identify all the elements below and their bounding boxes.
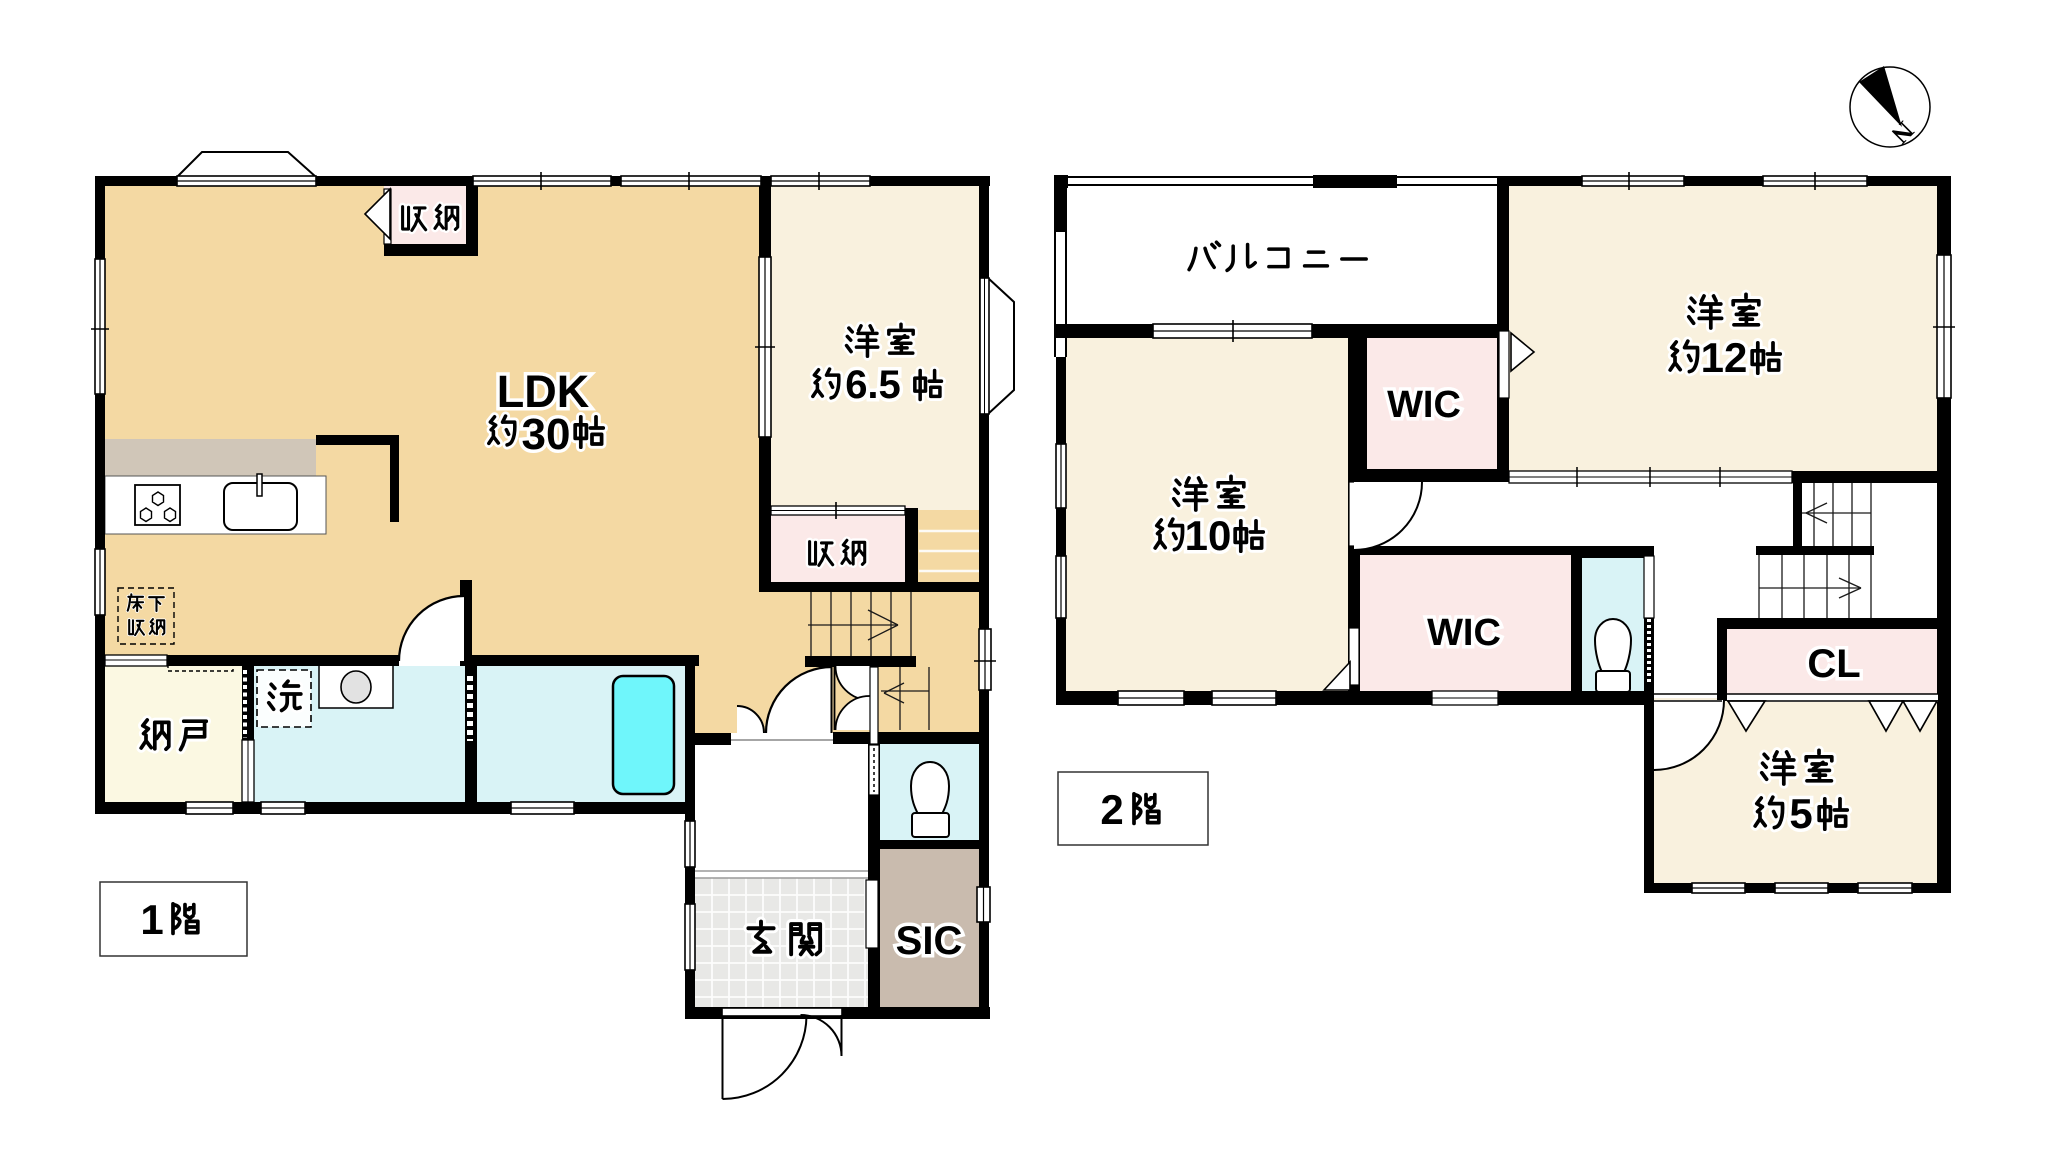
svg-text:CL: CL bbox=[1807, 642, 1860, 686]
svg-text:30: 30 bbox=[522, 410, 571, 459]
svg-text:10: 10 bbox=[1185, 512, 1232, 559]
svg-text:12: 12 bbox=[1701, 334, 1748, 381]
svg-text:1: 1 bbox=[140, 896, 163, 943]
svg-text:SIC: SIC bbox=[896, 919, 963, 963]
svg-text:5: 5 bbox=[1789, 790, 1812, 837]
svg-text:6.5: 6.5 bbox=[845, 363, 901, 407]
svg-text:WIC: WIC bbox=[1387, 384, 1461, 426]
svg-text:2: 2 bbox=[1100, 786, 1123, 833]
svg-text:WIC: WIC bbox=[1427, 612, 1501, 654]
